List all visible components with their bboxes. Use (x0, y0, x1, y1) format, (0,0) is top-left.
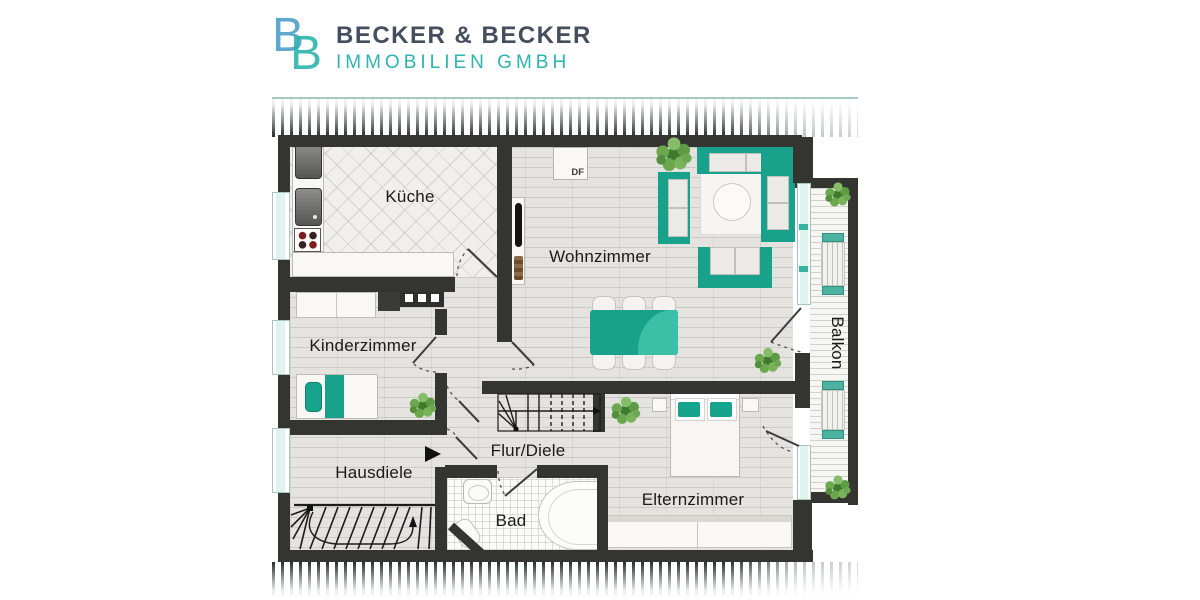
door-leaf (512, 342, 534, 365)
door-swing-arc (447, 386, 459, 401)
entrance-arrow-icon (425, 446, 441, 462)
room-label-bathroom: Bad (496, 511, 527, 531)
door-leaf (459, 401, 479, 422)
plant-icon (612, 397, 641, 424)
floorplan-page: B B BECKER & BECKER IMMOBILIEN GMBH (0, 0, 1200, 600)
door-swing-arc (771, 342, 801, 352)
straight-staircase (498, 394, 600, 431)
plant-icon (755, 348, 781, 373)
room-label-parents-room: Elternzimmer (642, 490, 745, 510)
room-label-balcony: Balkon (827, 316, 847, 369)
brand-name: BECKER & BECKER (336, 22, 592, 50)
plant-icon (825, 475, 850, 499)
diagonal-wall (451, 526, 483, 555)
room-label-children-room: Kinderzimmer (309, 336, 416, 356)
stair-start-marker (307, 505, 313, 511)
door-swing-arc (498, 471, 505, 495)
door-leaf (771, 308, 801, 342)
logo-monogram-b2: B (290, 30, 322, 78)
door-swing-arc (413, 363, 436, 372)
door-leaf (468, 249, 497, 277)
plant-icon (825, 182, 850, 206)
door-leaf (505, 469, 537, 496)
door-swing-arc (457, 249, 468, 276)
floor-plan: DF (270, 95, 860, 595)
room-label-corridor: Flur/Diele (491, 441, 566, 461)
brand-tagline: IMMOBILIEN GMBH (336, 52, 570, 74)
stair-up-arrow-icon (409, 516, 417, 527)
door-swing-arc (512, 365, 534, 369)
room-label-entrance-hall: Hausdiele (335, 463, 412, 483)
plant-icon (656, 137, 691, 171)
plant-icon (410, 393, 436, 418)
door-swing-arc (763, 426, 793, 452)
door-swings (413, 249, 801, 496)
room-label-kitchen: Küche (385, 187, 434, 207)
door-swing-arc (447, 429, 456, 437)
room-label-living-room: Wohnzimmer (549, 247, 651, 267)
door-leaf (456, 437, 477, 459)
stair-walkline-dot (513, 426, 518, 431)
